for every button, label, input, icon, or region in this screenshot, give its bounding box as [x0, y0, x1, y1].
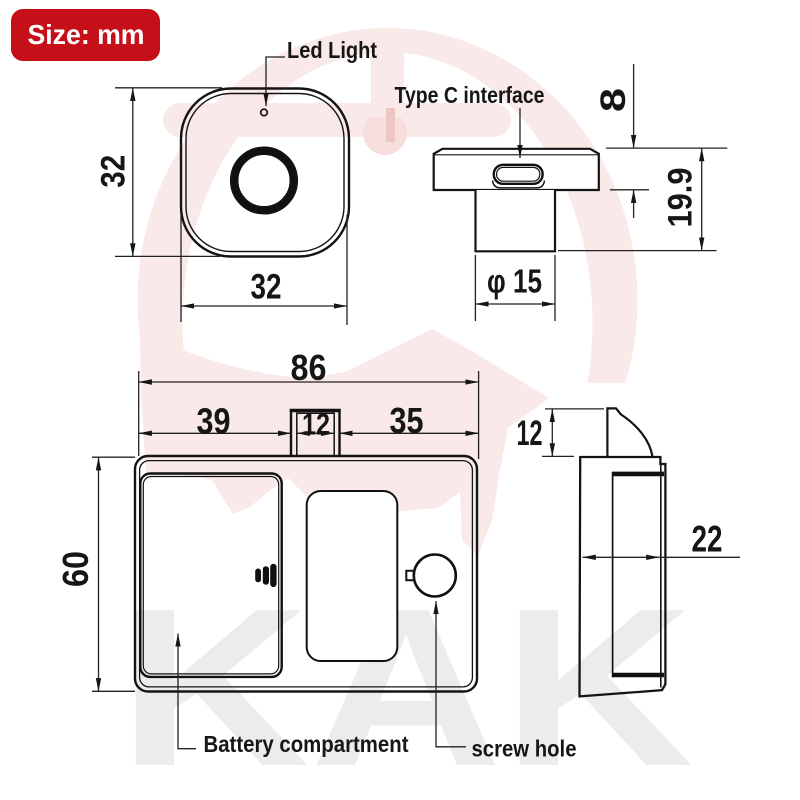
svg-text:39: 39 [197, 401, 231, 442]
svg-text:Battery compartment: Battery compartment [204, 731, 409, 757]
svg-text:12: 12 [302, 407, 330, 442]
svg-text:Type C interface: Type C interface [395, 82, 545, 108]
svg-text:60: 60 [55, 551, 96, 587]
svg-text:12: 12 [517, 414, 543, 453]
svg-text:φ 15: φ 15 [487, 263, 542, 300]
svg-text:35: 35 [390, 400, 424, 441]
svg-text:32: 32 [251, 268, 282, 307]
svg-text:Led Light: Led Light [287, 37, 377, 63]
svg-text:86: 86 [291, 347, 327, 388]
svg-text:Size: mm: Size: mm [28, 19, 145, 50]
svg-text:8: 8 [594, 88, 633, 112]
svg-text:32: 32 [95, 155, 133, 188]
svg-text:screw hole: screw hole [472, 736, 577, 762]
svg-text:KAK: KAK [118, 561, 694, 800]
svg-text:22: 22 [692, 519, 723, 560]
svg-text:19.9: 19.9 [662, 168, 700, 228]
